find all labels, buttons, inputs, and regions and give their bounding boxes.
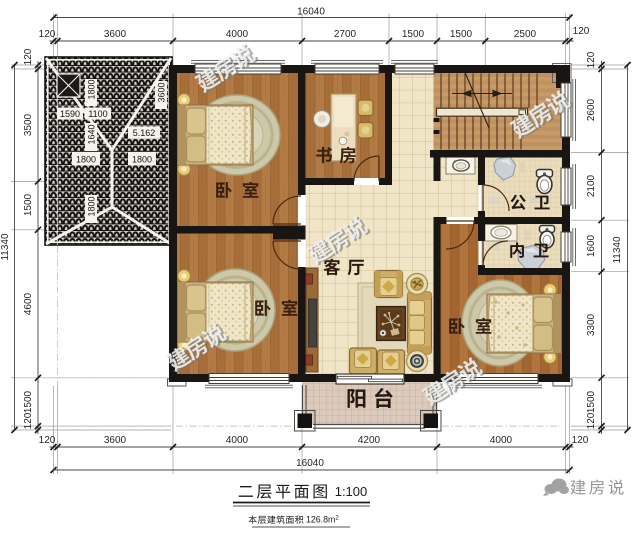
svg-text::: :: [299, 515, 301, 525]
svg-text:11340: 11340: [612, 236, 623, 264]
svg-text:2600: 2600: [586, 98, 597, 121]
svg-text:126.8m2: 126.8m2: [306, 515, 339, 525]
svg-text:120: 120: [586, 412, 597, 429]
svg-text:1800: 1800: [76, 155, 96, 165]
svg-text:3300: 3300: [586, 313, 597, 336]
svg-text:1500: 1500: [586, 390, 597, 413]
svg-text:1640: 1640: [87, 124, 97, 144]
svg-text:4000: 4000: [226, 29, 249, 40]
svg-text:3600: 3600: [157, 82, 167, 102]
svg-text:16040: 16040: [296, 458, 324, 469]
svg-text:1500: 1500: [402, 29, 425, 40]
svg-text:1600: 1600: [586, 234, 597, 257]
svg-text:2700: 2700: [334, 29, 357, 40]
svg-text:1590: 1590: [60, 109, 80, 119]
svg-text:1800: 1800: [132, 155, 152, 165]
svg-text:5.162: 5.162: [133, 128, 156, 138]
svg-text:11340: 11340: [0, 233, 11, 261]
svg-text:1100: 1100: [88, 109, 107, 119]
svg-text:4600: 4600: [23, 292, 34, 315]
svg-text:2500: 2500: [514, 29, 537, 40]
svg-text:16040: 16040: [297, 7, 325, 18]
svg-text:1800: 1800: [87, 79, 97, 99]
svg-text:120: 120: [573, 26, 590, 37]
svg-text:4000: 4000: [226, 435, 249, 446]
svg-text:1:100: 1:100: [335, 484, 368, 499]
svg-text:4200: 4200: [358, 435, 381, 446]
svg-text:1500: 1500: [23, 390, 34, 413]
svg-text:1800: 1800: [87, 196, 97, 216]
svg-text:3500: 3500: [23, 113, 34, 136]
svg-text:3600: 3600: [104, 29, 127, 40]
svg-text:120: 120: [586, 51, 597, 68]
svg-text:4000: 4000: [490, 435, 513, 446]
svg-text:120: 120: [572, 435, 589, 446]
svg-text:120: 120: [23, 412, 34, 429]
svg-text:3600: 3600: [104, 435, 127, 446]
svg-text:120: 120: [23, 48, 34, 65]
svg-text:1500: 1500: [450, 29, 473, 40]
svg-text:120: 120: [39, 29, 56, 40]
svg-text:1500: 1500: [23, 193, 34, 216]
svg-text:2100: 2100: [586, 174, 597, 197]
svg-text:120: 120: [39, 435, 56, 446]
